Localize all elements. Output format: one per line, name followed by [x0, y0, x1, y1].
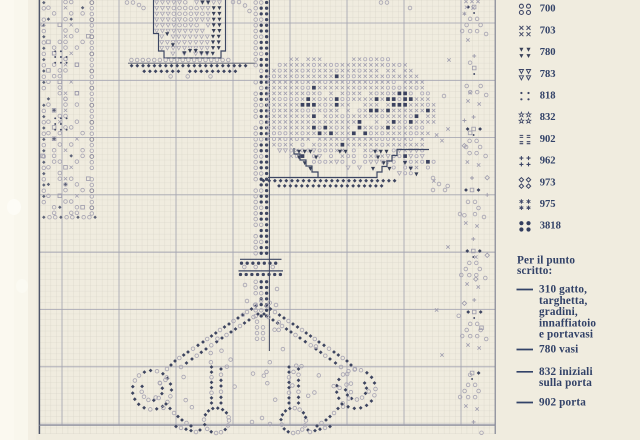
svg-text:780: 780 — [540, 47, 556, 58]
svg-text:scritto:: scritto: — [517, 265, 552, 277]
svg-text:818: 818 — [540, 91, 556, 102]
svg-text:e portavasi: e portavasi — [539, 329, 593, 341]
svg-text:innaffiatoio: innaffiatoio — [539, 317, 596, 329]
svg-text:973: 973 — [540, 177, 556, 188]
svg-text:962: 962 — [540, 156, 556, 167]
svg-text:902: 902 — [540, 134, 556, 145]
svg-text:310 gatto,: 310 gatto, — [539, 284, 587, 296]
svg-text:700: 700 — [540, 4, 556, 15]
svg-text:975: 975 — [540, 199, 556, 210]
svg-text:832: 832 — [540, 112, 556, 123]
svg-text:targhetta,: targhetta, — [539, 295, 587, 307]
svg-text:gradini,: gradini, — [539, 306, 578, 318]
svg-text:902 porta: 902 porta — [539, 397, 586, 409]
svg-text:3818: 3818 — [540, 221, 561, 232]
svg-text:780 vasi: 780 vasi — [539, 344, 578, 356]
svg-text:783: 783 — [540, 69, 556, 80]
svg-text:703: 703 — [540, 25, 556, 36]
svg-text:832 iniziali: 832 iniziali — [539, 366, 593, 378]
svg-text:sulla porta: sulla porta — [539, 377, 592, 389]
